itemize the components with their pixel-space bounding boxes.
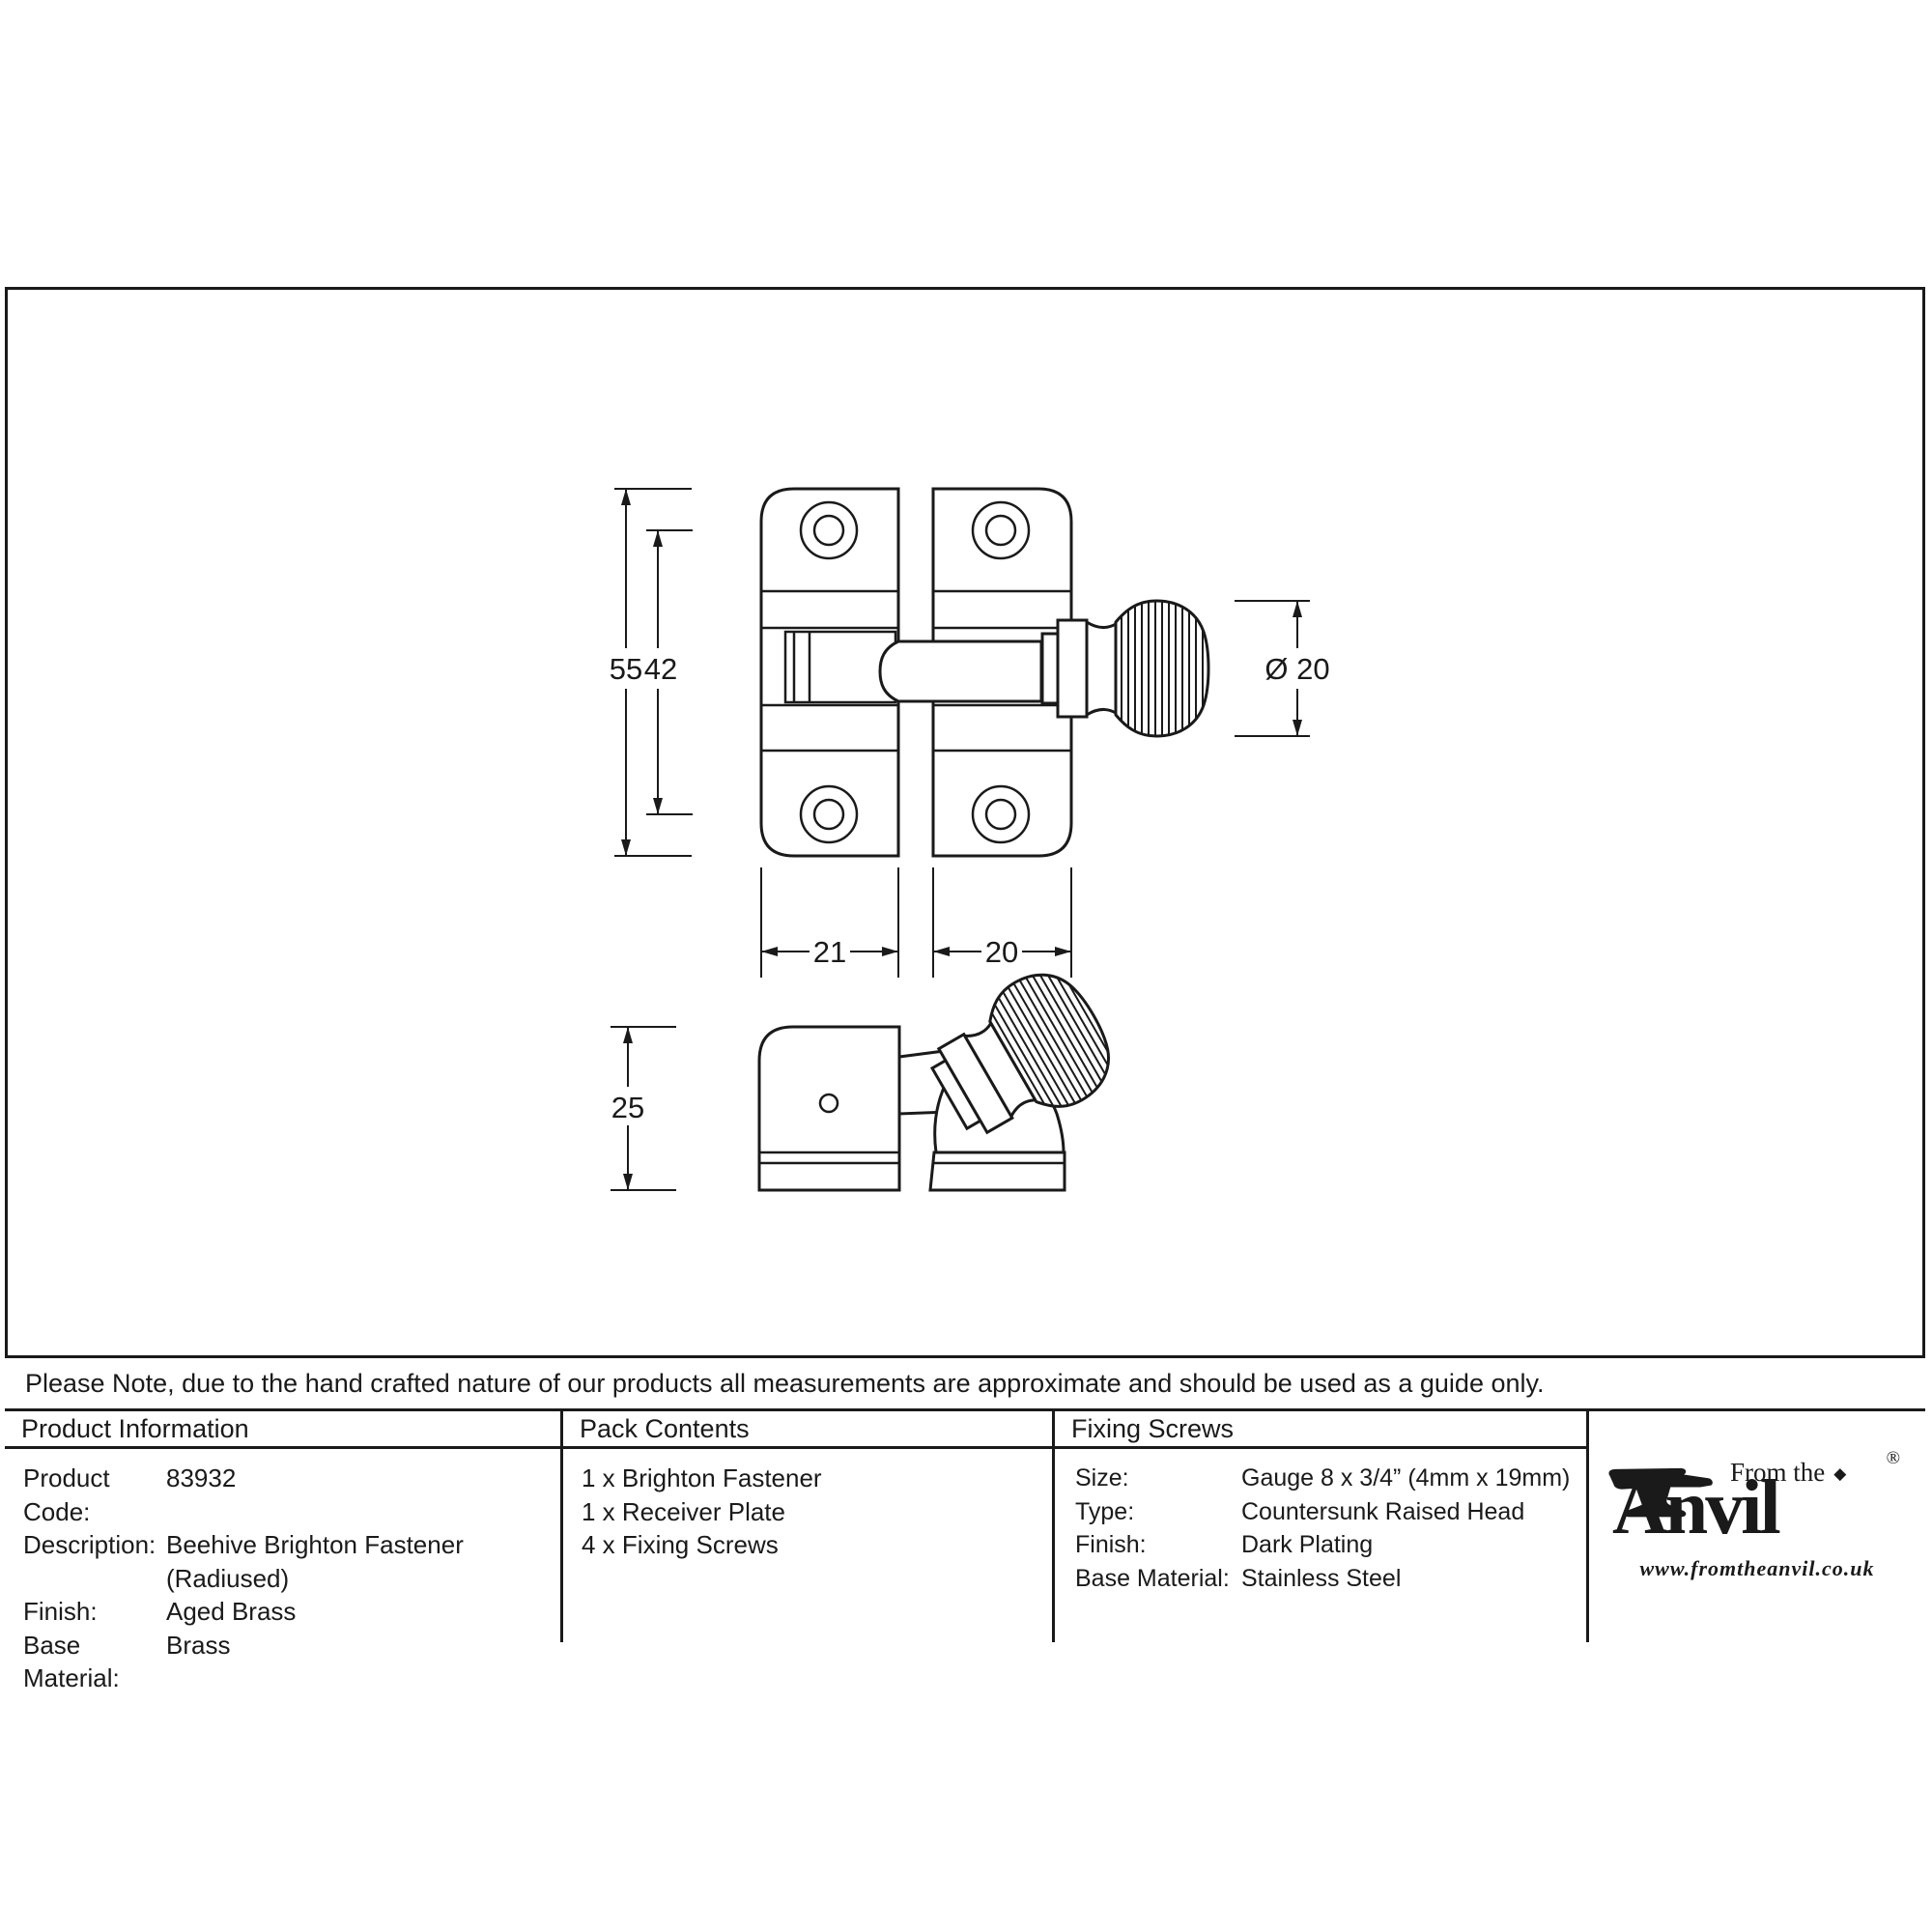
logo-tagline: From the◆	[1730, 1458, 1846, 1488]
base-material-label: Base Material:	[23, 1629, 166, 1695]
finish-value: Aged Brass	[166, 1595, 554, 1629]
dim-25-label: 25	[611, 1091, 644, 1124]
pack-item: 1 x Brighton Fastener	[582, 1462, 1046, 1495]
description-label: Description:	[23, 1528, 166, 1595]
registered-mark: ®	[1887, 1448, 1900, 1469]
logo-url: www.fromtheanvil.co.uk	[1612, 1556, 1902, 1581]
screw-finish-value: Dark Plating	[1241, 1528, 1580, 1562]
product-information-header: Product Information	[5, 1411, 560, 1449]
pack-item: 4 x Fixing Screws	[582, 1528, 1046, 1562]
dim-42-label: 42	[644, 652, 677, 686]
table-row: Product Code: 83932	[23, 1462, 554, 1528]
screw-size-label: Size:	[1075, 1462, 1241, 1495]
note-text: Please Note, due to the hand crafted nat…	[25, 1369, 1545, 1399]
table-row: Base Material: Brass	[23, 1629, 554, 1695]
description-value: Beehive Brighton Fastener	[166, 1528, 554, 1562]
screw-type-value: Countersunk Raised Head	[1241, 1495, 1580, 1529]
table-row: Finish: Aged Brass	[23, 1595, 554, 1629]
product-information-column: Product Information Product Code: 83932 …	[5, 1411, 563, 1642]
table-row: Type: Countersunk Raised Head	[1075, 1495, 1580, 1529]
note-row: Please Note, due to the hand crafted nat…	[5, 1355, 1925, 1411]
bolt-bar	[880, 641, 1041, 701]
product-code-value: 83932	[166, 1462, 554, 1528]
screw-base-material-value: Stainless Steel	[1241, 1562, 1580, 1596]
screw-finish-label: Finish:	[1075, 1528, 1241, 1562]
brand-cell: Anvil From the◆ ® www.fromtheanvil.co.uk	[1589, 1411, 1925, 1642]
pack-contents-header: Pack Contents	[563, 1411, 1052, 1449]
fixing-screws-header: Fixing Screws	[1055, 1411, 1586, 1449]
dim-dia20-label: Ø 20	[1264, 652, 1329, 686]
table-row: Base Material: Stainless Steel	[1075, 1562, 1580, 1596]
product-code-label: Product Code:	[23, 1462, 166, 1528]
pack-item: 1 x Receiver Plate	[582, 1495, 1046, 1529]
dim-21-label: 21	[813, 935, 846, 969]
beehive-knob-plan	[1042, 599, 1208, 738]
table-row: Description: Beehive Brighton Fastener (…	[23, 1528, 554, 1595]
anvil-icon	[1606, 1467, 1715, 1521]
plan-view	[761, 489, 1208, 856]
description-value-2: (Radiused)	[166, 1562, 554, 1596]
screw-base-material-label: Base Material:	[1075, 1562, 1241, 1596]
dim-20-label: 20	[985, 935, 1018, 969]
finish-label: Finish:	[23, 1595, 166, 1629]
from-the-anvil-logo: Anvil From the◆ ® www.fromtheanvil.co.uk	[1612, 1456, 1902, 1615]
table-row: Size: Gauge 8 x 3/4” (4mm x 19mm)	[1075, 1462, 1580, 1495]
side-view	[759, 955, 1128, 1190]
dim-55-label: 55	[610, 652, 642, 686]
screw-size-value: Gauge 8 x 3/4” (4mm x 19mm)	[1241, 1462, 1580, 1495]
fixing-screws-column: Fixing Screws Size: Gauge 8 x 3/4” (4mm …	[1055, 1411, 1589, 1642]
screw-type-label: Type:	[1075, 1495, 1241, 1529]
pack-contents-column: Pack Contents 1 x Brighton Fastener 1 x …	[563, 1411, 1055, 1642]
base-material-value: Brass	[166, 1629, 554, 1695]
diamond-icon: ◆	[1833, 1464, 1846, 1483]
table-row: Finish: Dark Plating	[1075, 1528, 1580, 1562]
